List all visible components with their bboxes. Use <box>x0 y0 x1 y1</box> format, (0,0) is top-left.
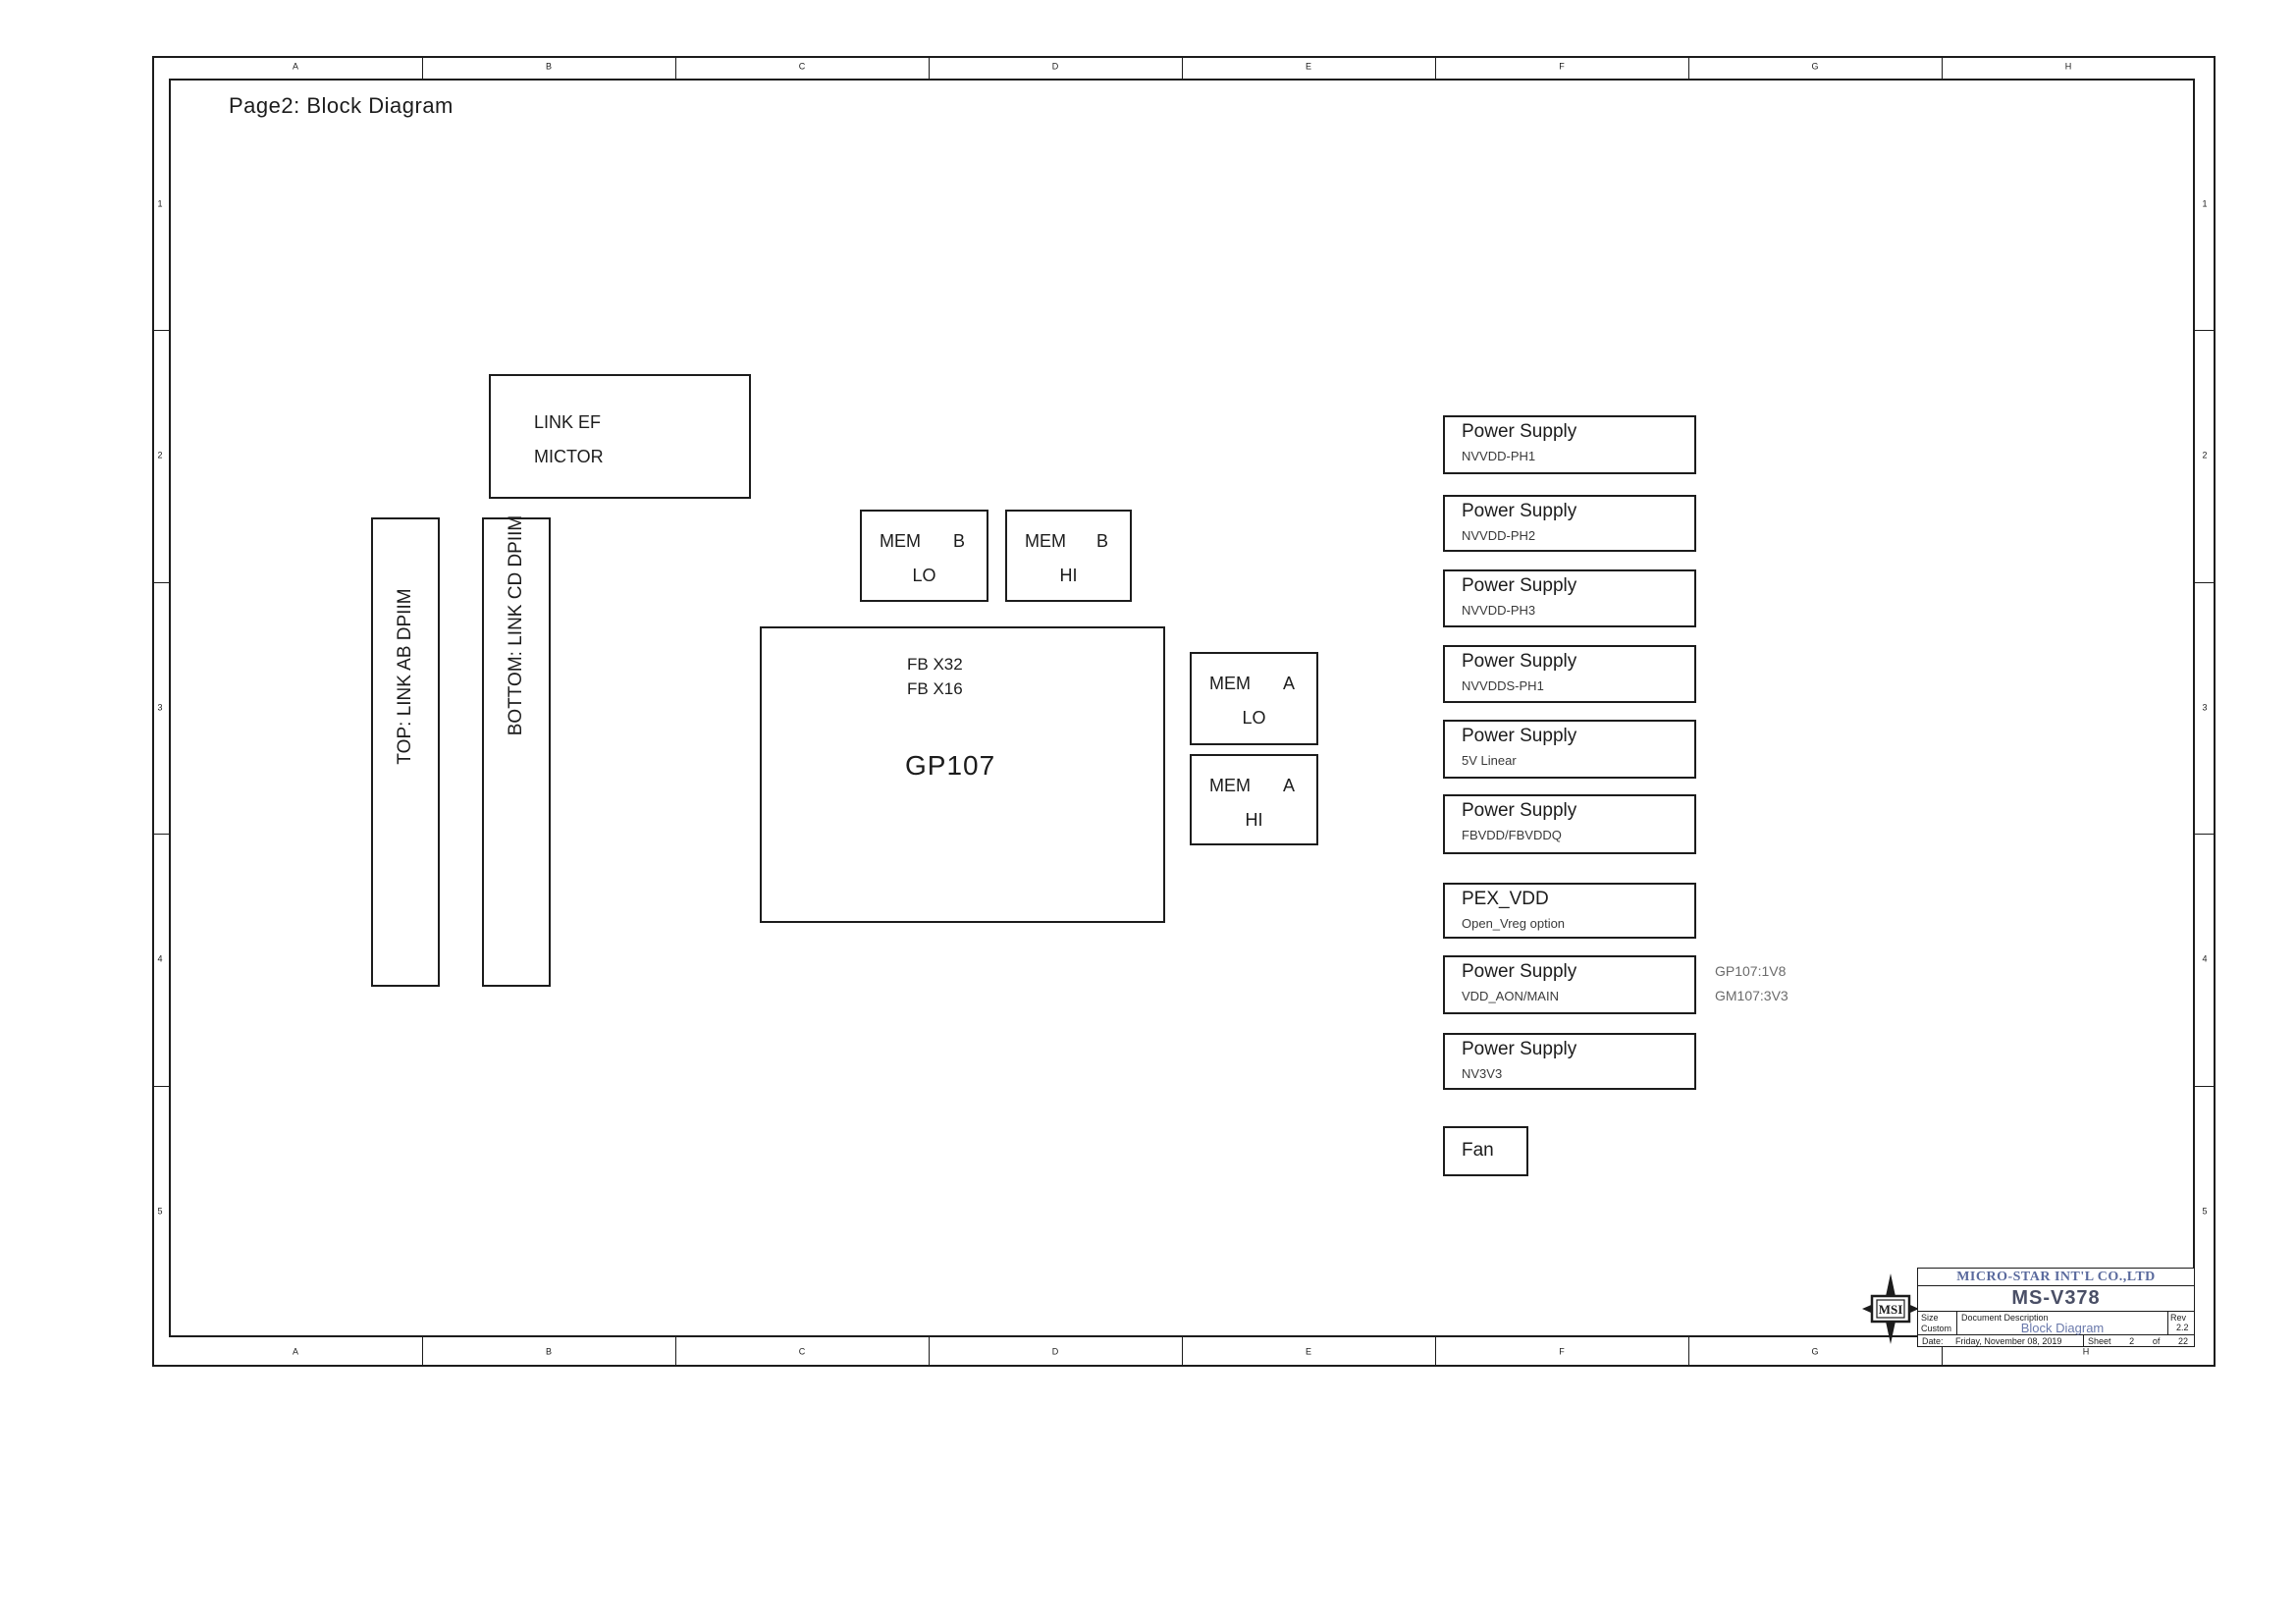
ruler-tick <box>2195 834 2216 835</box>
msi-logo: MSI <box>1861 1272 1920 1350</box>
ruler-tick <box>1435 56 1436 79</box>
ruler-col-label: E <box>1306 1348 1311 1357</box>
mem-level: LO <box>1192 708 1316 729</box>
ruler-col-label: D <box>1052 1348 1059 1357</box>
gm107-voltage-note: GM107:3V3 <box>1715 988 1789 1003</box>
mem-level: LO <box>862 566 987 586</box>
ruler-col-label: G <box>1811 1348 1818 1357</box>
fan-block: Fan <box>1443 1126 1528 1176</box>
gp107-fb-x32: FB X32 <box>907 655 963 675</box>
ruler-tick <box>1688 1337 1689 1367</box>
ruler-tick <box>929 1337 930 1367</box>
ruler-tick <box>1435 1337 1436 1367</box>
gp107-label: GP107 <box>905 750 995 782</box>
date-value: Friday, November 08, 2019 <box>1946 1336 2061 1346</box>
mem-channel: B <box>1096 531 1108 552</box>
power-supply-title: Power Supply <box>1462 726 1576 747</box>
ruler-col-label: D <box>1052 63 1059 72</box>
rev-value: 2.2 <box>2170 1323 2194 1332</box>
ruler-tick <box>1182 56 1183 79</box>
sheet-total: 22 <box>2178 1336 2188 1346</box>
rev-label: Rev <box>2170 1313 2194 1323</box>
link-ef-mictor-block: LINK EF MICTOR <box>489 374 751 499</box>
ruler-row-label: 5 <box>2202 1208 2207 1217</box>
mem-b-hi-block: MEM B HI <box>1005 510 1132 602</box>
power-supply-title: Power Supply <box>1462 421 1576 443</box>
fan-label: Fan <box>1462 1140 1494 1162</box>
ruler-tick <box>152 582 169 583</box>
mem-level: HI <box>1192 810 1316 831</box>
power-supply-rail: NVVDD-PH3 <box>1462 603 1535 618</box>
power-supply-rail: NVVDD-PH2 <box>1462 528 1535 543</box>
power-supply-title: Power Supply <box>1462 800 1576 822</box>
ruler-col-label: F <box>1559 1348 1565 1357</box>
gp107-fb-x16: FB X16 <box>907 679 963 699</box>
document-description-cell: Document Description Block Diagram <box>1957 1312 2167 1334</box>
ruler-tick <box>2195 1086 2216 1087</box>
ruler-row-label: 1 <box>2202 200 2207 209</box>
ruler-tick <box>2195 330 2216 331</box>
power-supply-rail: Open_Vreg option <box>1462 916 1565 931</box>
ruler-col-label: C <box>799 1348 806 1357</box>
power-supply-rail: NV3V3 <box>1462 1066 1502 1081</box>
mem-level: HI <box>1007 566 1130 586</box>
ruler-row-label: 3 <box>157 704 162 713</box>
ruler-row-label: 3 <box>2202 704 2207 713</box>
ruler-row-label: 5 <box>157 1208 162 1217</box>
mem-channel: A <box>1283 674 1295 694</box>
ruler-col-label: H <box>2065 63 2072 72</box>
date-cell: Date: Friday, November 08, 2019 <box>1918 1335 2083 1346</box>
ruler-col-label: E <box>1306 63 1311 72</box>
power-supply-title: Power Supply <box>1462 1039 1576 1060</box>
document-title: Block Diagram <box>1957 1321 2167 1335</box>
ruler-tick <box>1942 56 1943 79</box>
link-cd-dpiim-block: BOTTOM: LINK CD DPIIM <box>482 517 551 987</box>
mem-channel: B <box>953 531 965 552</box>
rev-cell: Rev 2.2 <box>2167 1312 2194 1334</box>
ruler-row-label: 2 <box>157 452 162 460</box>
link-ab-dpiim-block: TOP: LINK AB DPIIM <box>371 517 440 987</box>
ruler-row-label: 4 <box>157 955 162 964</box>
size-value: Custom <box>1921 1324 1956 1334</box>
size-label: Size <box>1921 1313 1956 1324</box>
title-block: MICRO-STAR INT'L CO.,LTD MS-V378 Size Cu… <box>1917 1268 2195 1347</box>
link-ab-dpiim-label: TOP: LINK AB DPIIM <box>395 588 416 764</box>
power-supply-rail: NVVDD-PH1 <box>1462 449 1535 463</box>
sheet-inner-border <box>169 79 2195 1337</box>
ruler-tick <box>675 56 676 79</box>
power-supply-title: Power Supply <box>1462 501 1576 522</box>
power-supply-rail: NVVDDS-PH1 <box>1462 678 1544 693</box>
ruler-col-label: A <box>293 1348 298 1357</box>
power-supply-block-nvvdd-ph1: Power Supply NVVDD-PH1 <box>1443 415 1696 474</box>
sheet-cell: Sheet 2 of 22 <box>2083 1335 2194 1346</box>
msi-logo-text: MSI <box>1879 1302 1903 1317</box>
ruler-tick <box>2195 582 2216 583</box>
ruler-tick <box>1688 56 1689 79</box>
power-supply-block-nvvdds-ph1: Power Supply NVVDDS-PH1 <box>1443 645 1696 703</box>
sheet-number: 2 <box>2129 1336 2134 1346</box>
ruler-row-label: 2 <box>2202 452 2207 460</box>
company-name: MICRO-STAR INT'L CO.,LTD <box>1918 1269 2194 1286</box>
model-number: MS-V378 <box>1918 1286 2194 1312</box>
power-supply-block-nvvdd-ph3: Power Supply NVVDD-PH3 <box>1443 569 1696 627</box>
power-supply-rail: 5V Linear <box>1462 753 1517 768</box>
power-supply-title: PEX_VDD <box>1462 889 1549 910</box>
ruler-col-label: C <box>799 63 806 72</box>
ruler-tick <box>152 330 169 331</box>
ruler-col-label: G <box>1811 63 1818 72</box>
mictor-line2: MICTOR <box>534 440 749 474</box>
mem-group: MEM <box>1025 531 1066 552</box>
link-cd-dpiim-label: BOTTOM: LINK CD DPIIM <box>506 515 527 736</box>
power-supply-block-pex-vdd: PEX_VDD Open_Vreg option <box>1443 883 1696 939</box>
sheet-label: Sheet <box>2088 1336 2111 1346</box>
ruler-col-label: B <box>546 63 552 72</box>
ruler-tick <box>422 1337 423 1367</box>
mem-group: MEM <box>1209 776 1251 796</box>
ruler-tick <box>152 834 169 835</box>
ruler-tick <box>422 56 423 79</box>
mictor-line1: LINK EF <box>534 406 749 440</box>
power-supply-rail: VDD_AON/MAIN <box>1462 989 1559 1003</box>
power-supply-title: Power Supply <box>1462 961 1576 983</box>
power-supply-title: Power Supply <box>1462 575 1576 597</box>
mem-group: MEM <box>1209 674 1251 694</box>
sheet-of-label: of <box>2153 1336 2161 1346</box>
page-title: Page2: Block Diagram <box>229 93 454 119</box>
mem-channel: A <box>1283 776 1295 796</box>
mem-a-hi-block: MEM A HI <box>1190 754 1318 845</box>
ruler-tick <box>929 56 930 79</box>
gp107-block: FB X32 FB X16 GP107 <box>760 626 1165 923</box>
ruler-tick <box>675 1337 676 1367</box>
size-cell: Size Custom <box>1918 1312 1957 1334</box>
ruler-col-label: F <box>1559 63 1565 72</box>
ruler-col-label: A <box>293 63 298 72</box>
power-supply-block-nvvdd-ph2: Power Supply NVVDD-PH2 <box>1443 495 1696 552</box>
power-supply-block-fbvdd: Power Supply FBVDD/FBVDDQ <box>1443 794 1696 854</box>
power-supply-title: Power Supply <box>1462 651 1576 673</box>
power-supply-block-5v-linear: Power Supply 5V Linear <box>1443 720 1696 779</box>
power-supply-block-vdd-aon: Power Supply VDD_AON/MAIN <box>1443 955 1696 1014</box>
power-supply-block-nv3v3: Power Supply NV3V3 <box>1443 1033 1696 1090</box>
ruler-tick <box>152 1086 169 1087</box>
mem-b-lo-block: MEM B LO <box>860 510 988 602</box>
date-label: Date: <box>1922 1336 1944 1346</box>
mem-group: MEM <box>880 531 921 552</box>
ruler-row-label: 4 <box>2202 955 2207 964</box>
ruler-tick <box>1182 1337 1183 1367</box>
power-supply-rail: FBVDD/FBVDDQ <box>1462 828 1562 842</box>
schematic-sheet: A B C D E F G H A B C D E F G H 1 2 3 4 … <box>0 0 2296 1623</box>
ruler-col-label: B <box>546 1348 552 1357</box>
ruler-row-label: 1 <box>157 200 162 209</box>
gp107-voltage-note: GP107:1V8 <box>1715 963 1786 979</box>
mem-a-lo-block: MEM A LO <box>1190 652 1318 745</box>
ruler-col-label: H <box>2083 1348 2090 1357</box>
